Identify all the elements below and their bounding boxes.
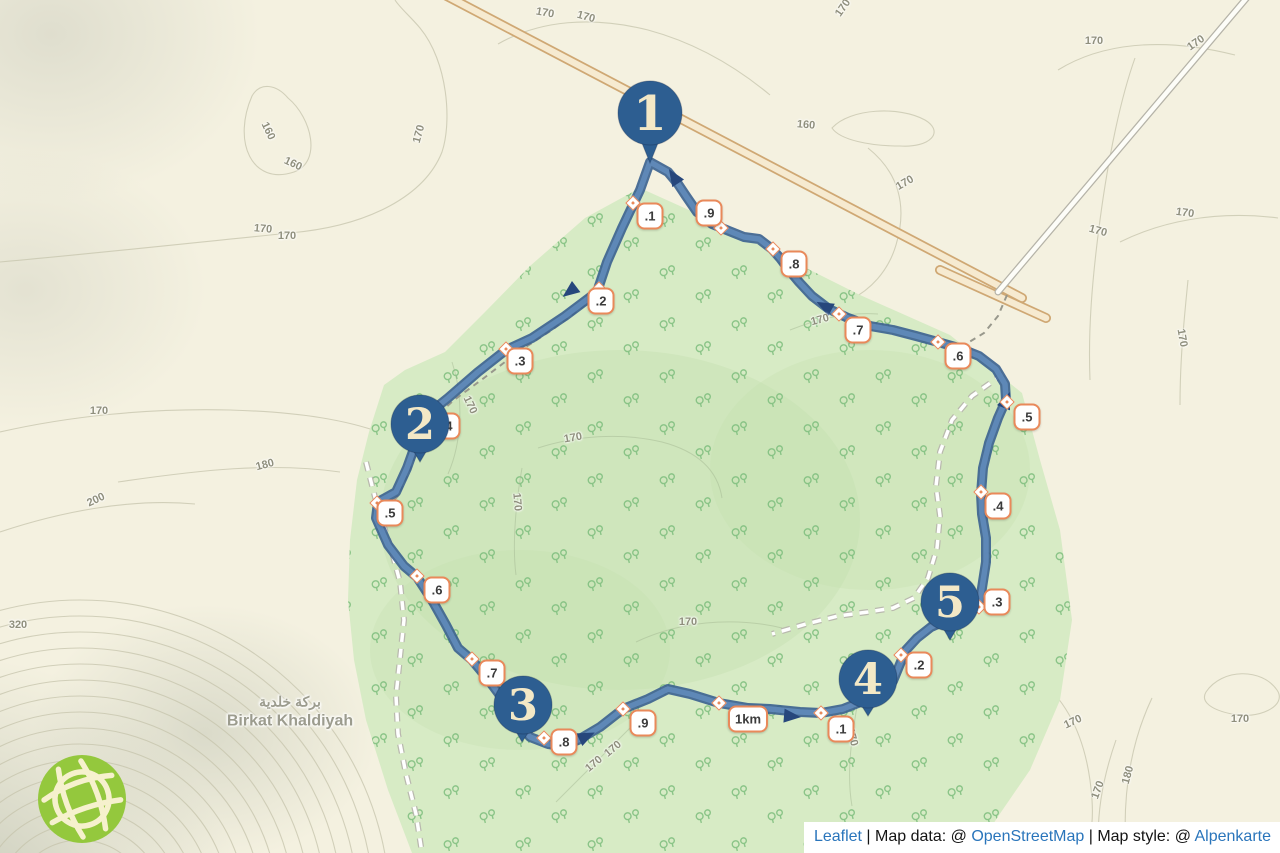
attribution-link-leaflet[interactable]: Leaflet	[814, 828, 862, 845]
attribution-bar: Leaflet | Map data: @ OpenStreetMap | Ma…	[804, 822, 1280, 853]
globe-logo-icon	[36, 753, 128, 845]
attribution-text: | Map data: @	[862, 828, 971, 845]
waypoint-marker-5[interactable]: 5	[921, 573, 979, 640]
waypoint-number: 1	[633, 86, 666, 142]
map-canvas[interactable]: بركة خلدية Birkat Khaldiyah 170170170170…	[0, 0, 1280, 853]
waypoint-marker-2[interactable]: 2	[391, 395, 449, 462]
waypoint-pins-layer: 12345	[0, 0, 1280, 853]
waypoint-number: 5	[935, 578, 965, 628]
attribution-text: | Map style: @	[1084, 828, 1194, 845]
waypoint-number: 2	[405, 400, 435, 450]
attribution-link-alpenkarte[interactable]: Alpenkarte	[1195, 828, 1272, 845]
waypoint-number: 4	[853, 655, 883, 705]
waypoint-marker-1[interactable]: 1	[618, 81, 682, 163]
waypoint-number: 3	[508, 681, 538, 731]
attribution-link-openstreetmap[interactable]: OpenStreetMap	[971, 828, 1084, 845]
waypoint-marker-3[interactable]: 3	[494, 676, 552, 742]
waypoint-marker-4[interactable]: 4	[839, 650, 897, 716]
